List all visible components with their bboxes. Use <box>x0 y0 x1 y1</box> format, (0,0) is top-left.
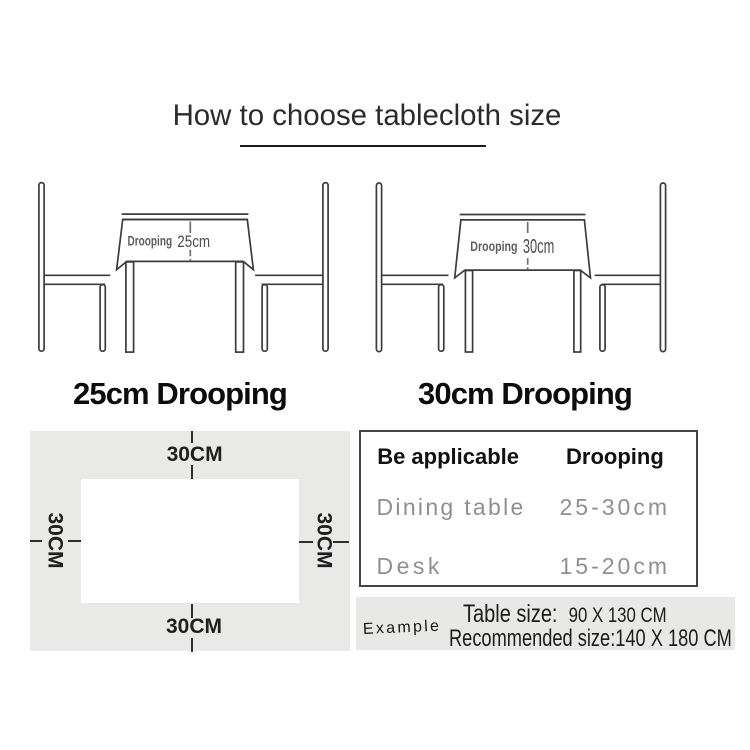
svg-text:25cm: 25cm <box>177 232 210 251</box>
svg-text:30cm: 30cm <box>523 236 554 258</box>
svg-text:Drooping: Drooping <box>128 232 173 248</box>
svg-text:Drooping: Drooping <box>470 238 517 254</box>
